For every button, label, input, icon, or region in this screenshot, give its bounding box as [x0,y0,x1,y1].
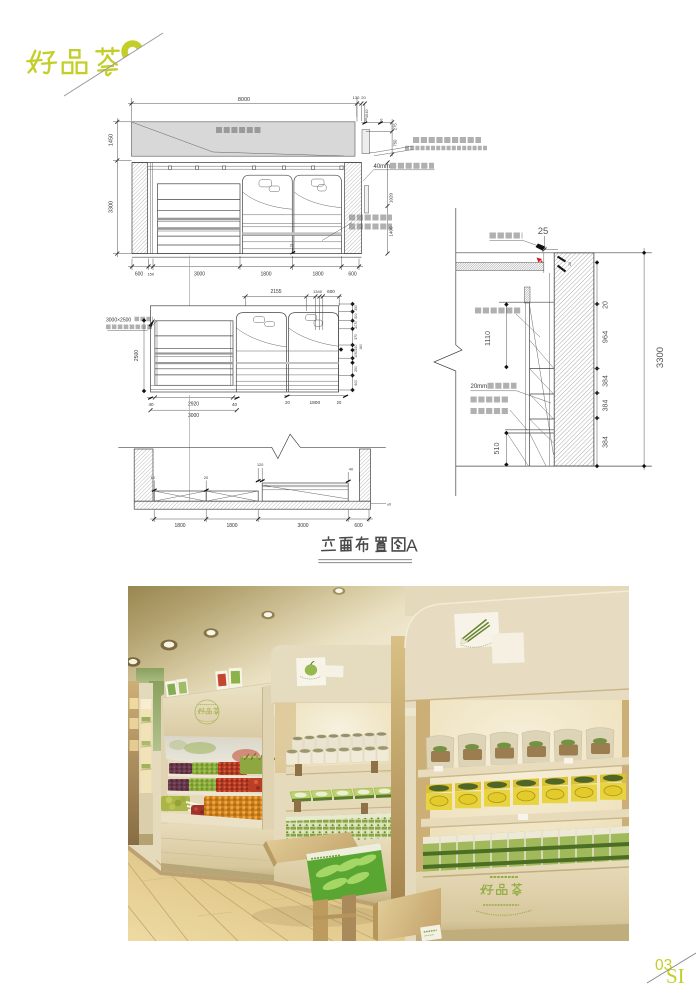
svg-text:3000: 3000 [194,272,205,278]
svg-text:40: 40 [365,110,369,114]
svg-text:600: 600 [327,289,335,294]
svg-text:1050: 1050 [354,350,358,358]
svg-text:964: 964 [601,331,610,344]
svg-text:150: 150 [354,345,358,351]
svg-text:350: 350 [354,305,358,311]
svg-text:160: 160 [359,344,363,350]
svg-text:1800: 1800 [312,272,323,278]
svg-text:8000: 8000 [238,97,250,103]
svg-text:20: 20 [290,243,295,248]
svg-text:600: 600 [354,380,358,386]
svg-text:2920: 2920 [188,402,199,408]
svg-text:20: 20 [285,400,290,405]
svg-text:3000×2500: 3000×2500 [106,317,131,323]
svg-text:120: 120 [257,463,263,467]
svg-text:2500: 2500 [134,350,140,361]
svg-text:20: 20 [603,301,610,309]
svg-text:3300: 3300 [655,347,666,368]
svg-text:3300: 3300 [109,201,115,213]
svg-text:40: 40 [380,119,384,123]
svg-text:40: 40 [148,402,154,407]
svg-text:1020: 1020 [388,192,393,203]
svg-text:150: 150 [147,272,154,277]
svg-text:1110: 1110 [483,331,492,346]
svg-text:20: 20 [204,476,208,480]
svg-text:20mm: 20mm [471,384,488,390]
svg-text:600: 600 [348,272,357,278]
svg-text:20: 20 [337,400,342,405]
svg-text:510: 510 [492,443,501,455]
svg-text:2155: 2155 [270,289,281,295]
svg-text:1800: 1800 [260,272,271,278]
svg-text:750: 750 [393,139,398,147]
svg-text:40: 40 [349,468,353,472]
svg-text:1800: 1800 [226,523,237,529]
svg-text:40: 40 [365,114,369,118]
svg-text:3000: 3000 [297,523,308,529]
svg-text:25: 25 [538,226,549,237]
svg-text:600: 600 [135,272,144,278]
svg-text:250: 250 [354,366,358,372]
svg-text:1800: 1800 [174,523,185,529]
svg-text:275: 275 [393,123,398,131]
svg-text:384: 384 [603,400,610,412]
svg-text:600: 600 [354,523,363,529]
svg-text:3000: 3000 [188,413,199,419]
svg-text:370: 370 [354,334,358,340]
svg-text:384: 384 [603,375,610,387]
svg-text:130: 130 [353,95,360,100]
svg-text:1800: 1800 [309,400,320,406]
svg-text:384: 384 [603,436,610,448]
svg-text:±0: ±0 [387,503,391,507]
svg-text:SI: SI [666,964,685,988]
svg-text:2070: 2070 [354,321,358,329]
svg-text:1340: 1340 [313,289,323,294]
svg-text:20: 20 [361,95,366,100]
svg-text:A: A [406,536,418,556]
svg-text:1450: 1450 [109,134,115,146]
svg-text:40: 40 [232,402,238,407]
svg-text:10: 10 [151,476,155,480]
svg-text:300: 300 [354,313,358,319]
